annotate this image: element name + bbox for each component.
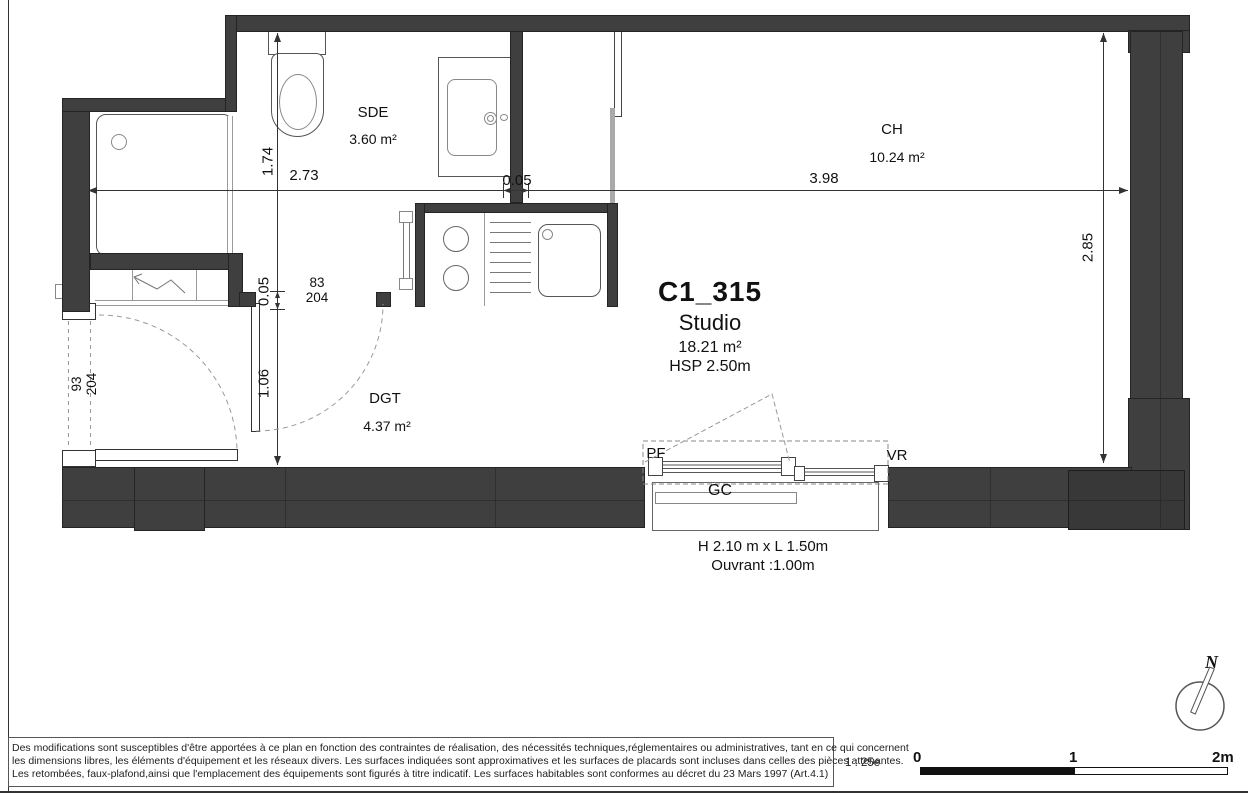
closet-front [95, 300, 241, 306]
hob-burner-icon [443, 265, 469, 291]
entry-door-jamb [62, 450, 96, 467]
wall-sde-top [62, 98, 237, 112]
wall-seam [285, 467, 286, 527]
washbasin-faucet-dot [487, 115, 494, 122]
door-jamb-block [376, 292, 391, 307]
sheet-border-left [8, 0, 9, 793]
closet-seam [132, 270, 133, 301]
wall-kitchen-top [415, 203, 618, 213]
dim-height-sde: 1.74 [260, 132, 277, 192]
window-label-gc: GC [700, 482, 740, 500]
sink-drainer-lines [490, 222, 531, 296]
partition-sliding-panel [610, 108, 615, 205]
wall-kitchen-left [415, 203, 425, 307]
unit-label-block: C1_315 Studio 18.21 m² HSP 2.50m [610, 276, 810, 376]
kitchen-faucet-icon [542, 229, 553, 240]
window-gc-box [652, 482, 879, 531]
wall-bottom-step [134, 467, 205, 531]
wall-step-top-left [225, 15, 237, 112]
dim-wall-gap-v: 0.05 [256, 262, 273, 322]
disclaimer-line: Des modifications sont susceptibles d'êt… [12, 742, 909, 755]
scale-bar-solid [920, 767, 1074, 775]
disclaimer-line: les dimensions libres, les éléments d'éq… [12, 755, 903, 768]
wall-seam [990, 467, 991, 527]
sheet-border-bottom [0, 791, 1248, 793]
room-area-sde: 3.60 m² [338, 131, 408, 147]
door-size-interior: 83 204 [298, 275, 336, 305]
toilet-tank [268, 30, 326, 55]
wall-top [225, 15, 1190, 32]
scale-tick-1: 1 [1069, 749, 1077, 766]
pocket-door-rail [403, 218, 404, 283]
wall-seam [495, 467, 496, 527]
room-name-sde: SDE [353, 104, 393, 121]
room-area-dgt: 4.37 m² [352, 418, 422, 434]
shower-glass-panel [227, 116, 233, 254]
scale-tick-0: 0 [913, 749, 921, 766]
dim-width-sde: 2.73 [274, 167, 334, 184]
room-name-ch: CH [872, 121, 912, 138]
door-interior-height: 204 [298, 290, 336, 305]
entry-door-leaf [95, 449, 238, 461]
dim-wall-gap-h: 0.05 [487, 172, 547, 189]
window-opening-text: Ouvrant :1.00m [683, 557, 843, 574]
window-label-vr: VR [880, 447, 914, 464]
window-size-text: H 2.10 m x L 1.50m [683, 538, 843, 555]
door-entry-height: 204 [84, 360, 99, 408]
wall-seam [888, 500, 1185, 501]
floor-plan-sheet: SDE 3.60 m² CH 10.24 m² DGT 4.37 m² C1_3… [0, 0, 1248, 800]
door-interior-width: 83 [298, 275, 336, 290]
unit-area: 18.21 m² [610, 339, 810, 357]
door-entry-width: 93 [69, 360, 84, 408]
scale-ratio-label: 1 : 25e [845, 757, 880, 769]
unit-id: C1_315 [610, 276, 810, 308]
north-label: N [1205, 652, 1218, 673]
kitchen-divider-line [484, 213, 485, 306]
unit-ceiling-height: HSP 2.50m [610, 358, 810, 376]
door-jamb-block [239, 292, 256, 307]
dim-width-ch: 3.98 [794, 170, 854, 187]
scale-bar-outline [1074, 767, 1228, 775]
washbasin-control-icon [500, 114, 508, 121]
wall-right [1130, 31, 1183, 401]
wall-seam [1160, 31, 1161, 528]
window-post [874, 465, 889, 482]
window-glazing-lines [800, 468, 876, 478]
window-glazing-lines [660, 461, 782, 473]
room-name-dgt: DGT [363, 390, 407, 407]
window-post [794, 466, 805, 481]
room-area-ch: 10.24 m² [857, 149, 937, 165]
window-label-pf: PF [640, 445, 672, 462]
hob-burner-icon [443, 226, 469, 252]
shower-drain-icon [111, 134, 127, 150]
dim-entry-depth: 1.06 [256, 354, 273, 414]
pocket-door-end [399, 278, 413, 290]
wall-seam [62, 500, 645, 501]
partition-fixed-panel [614, 31, 622, 117]
scale-tick-2: 2m [1212, 749, 1234, 766]
pocket-door-end [399, 211, 413, 223]
disclaimer-line: Les retombées, faux-plafond,ainsi que l'… [12, 768, 828, 781]
wall-left [62, 98, 90, 312]
door-size-entry: 93 204 [69, 360, 99, 408]
pocket-door-rail [409, 218, 410, 283]
wall-shower-closet [90, 253, 243, 270]
toilet-seat [279, 74, 317, 130]
dim-height-ch: 2.85 [1080, 218, 1097, 278]
closet-seam [196, 270, 197, 301]
unit-type: Studio [610, 310, 810, 336]
